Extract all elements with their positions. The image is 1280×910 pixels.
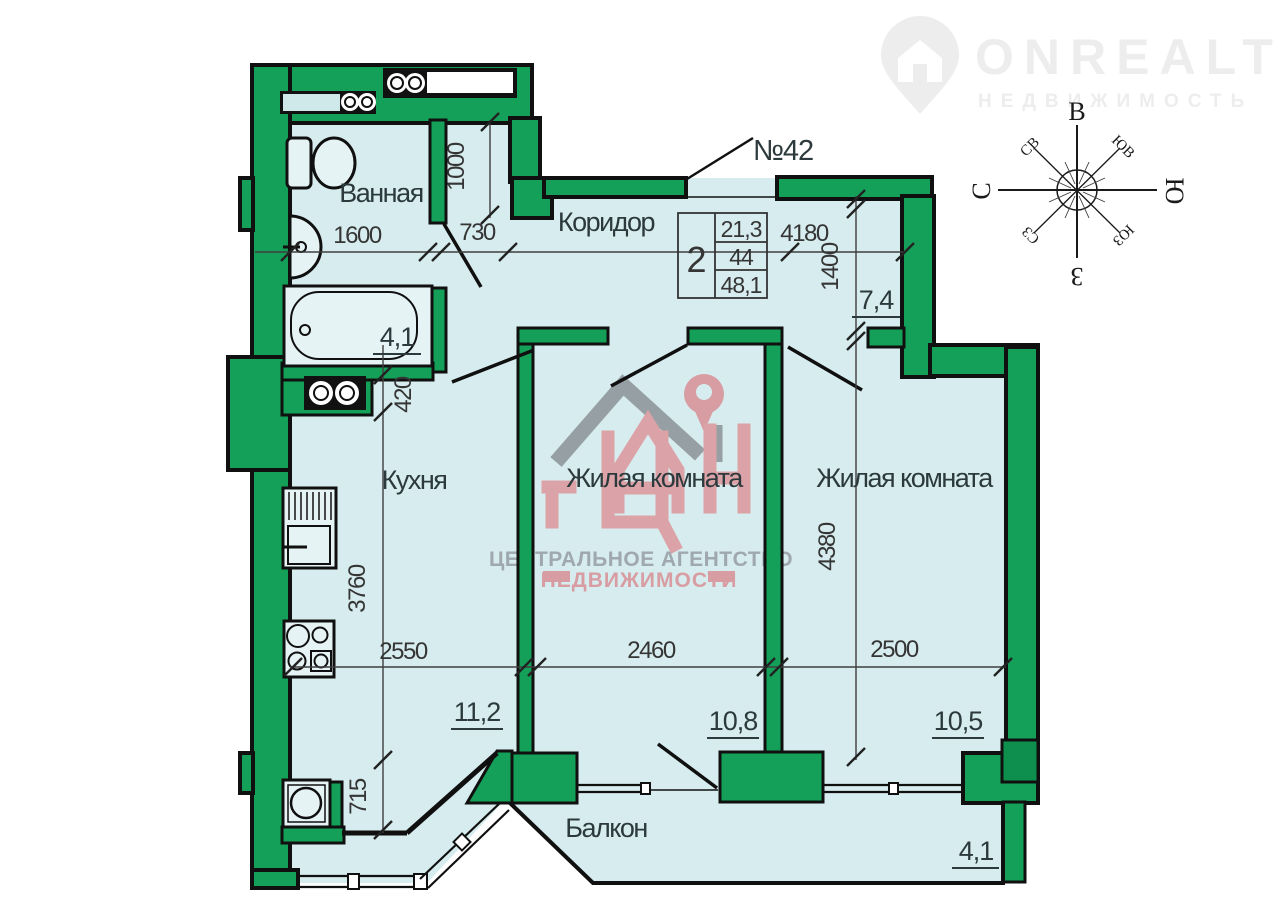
dim-1000: 1000 xyxy=(443,142,470,191)
brand-name: ONREALT xyxy=(975,29,1280,85)
room-label-corridor: Коридор xyxy=(558,207,655,237)
watermark-line2: НЕДВИЖИМОСТИ xyxy=(541,569,738,592)
dim-1600: 1600 xyxy=(333,222,382,249)
dim-715: 715 xyxy=(345,778,372,815)
dim-2500: 2500 xyxy=(870,636,919,663)
room-label-room1: Жилая комната xyxy=(566,463,744,493)
balcony-right-wall xyxy=(1003,802,1025,882)
unit-number-leader xyxy=(687,138,753,179)
compass-north: С xyxy=(967,182,996,199)
room-label-kitchen: Кухня xyxy=(382,465,447,495)
compass-rose: В С Ю З СВ ЮВ СЗ ЮЗ xyxy=(967,97,1189,291)
compass-se: ЮВ xyxy=(1108,133,1137,162)
dim-2550: 2550 xyxy=(379,638,428,665)
table-mid-value: 44 xyxy=(729,244,754,270)
compass-south: Ю xyxy=(1160,178,1189,205)
compass-ne: СВ xyxy=(1017,134,1042,159)
dim-3760: 3760 xyxy=(344,564,371,613)
area-corridor: 7,4 xyxy=(859,285,895,315)
area-kitchen: 11,2 xyxy=(454,697,501,727)
unit-number: №42 xyxy=(753,135,813,167)
dim-1400: 1400 xyxy=(817,242,844,291)
toilet-icon xyxy=(287,138,311,188)
dim-730: 730 xyxy=(459,219,496,246)
wall-room1-room2 xyxy=(765,343,782,755)
dim-4180: 4180 xyxy=(780,220,829,247)
wall-kitchen-room1 xyxy=(518,343,533,755)
compass-nw: СЗ xyxy=(1019,223,1043,247)
table-living-area: 21,3 xyxy=(721,216,762,242)
washer-icon xyxy=(283,780,330,827)
compass-sw: ЮЗ xyxy=(1109,221,1137,249)
area-room1: 10,8 xyxy=(709,706,758,736)
dim-2460: 2460 xyxy=(627,637,676,664)
wall-entry-left xyxy=(544,178,686,197)
brand-tagline: НЕДВИЖИМОСТЬ xyxy=(978,91,1253,112)
watermark-line1: ЦЕНТРАЛЬНОЕ АГЕНТСТВО xyxy=(489,548,793,571)
compass-west: З xyxy=(1070,262,1083,291)
dim-420: 420 xyxy=(390,376,417,413)
onrealt-house-door xyxy=(913,64,927,82)
table-rooms-count: 2 xyxy=(686,239,705,280)
wall-left xyxy=(252,65,290,887)
room-label-bathroom: Ванная xyxy=(339,178,422,208)
compass-east: В xyxy=(1068,97,1085,126)
area-bathroom: 4,1 xyxy=(380,322,415,352)
floorplan-drawing: ONREALT НЕДВИЖИМОСТЬ ЦЕНТРАЛЬНОЕ АГЕНТСТ… xyxy=(0,0,1280,910)
table-total-area: 48,1 xyxy=(721,272,762,298)
area-room2: 10,5 xyxy=(934,706,983,736)
dim-4380: 4380 xyxy=(814,522,841,571)
wall-right xyxy=(1006,347,1038,803)
room-label-room2: Жилая комната xyxy=(816,463,994,493)
room-label-balcony: Балкон xyxy=(565,813,647,843)
kitchen-sink-icon xyxy=(283,488,336,568)
area-balcony: 4,1 xyxy=(959,836,994,866)
floorplan-page: ONREALT НЕДВИЖИМОСТЬ ЦЕНТРАЛЬНОЕ АГЕНТСТ… xyxy=(0,0,1280,910)
